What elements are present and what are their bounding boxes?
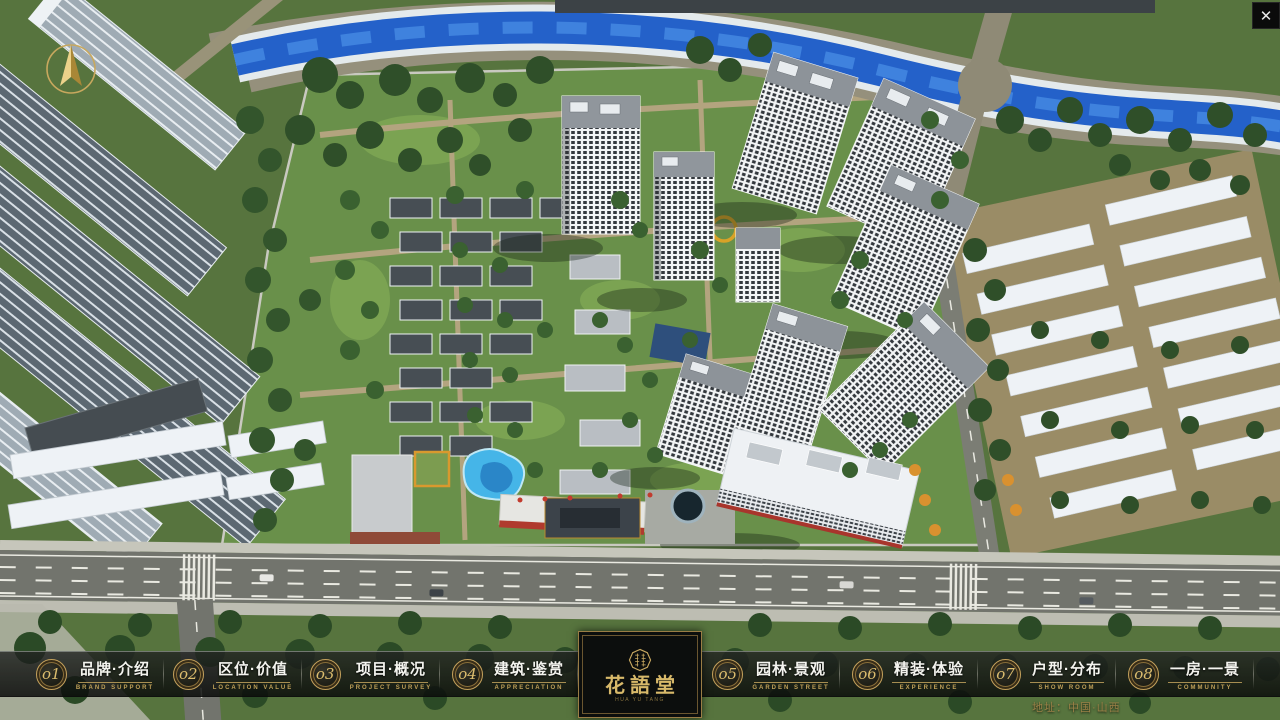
badge-o3: o3 (310, 659, 341, 690)
menu-subtitle: BRAND SUPPORT (76, 685, 154, 691)
masterplan-render (0, 0, 1280, 720)
menu-subtitle: APPRECIATION (495, 685, 564, 691)
menu-subtitle: COMMUNITY (1178, 685, 1233, 691)
brick-wall (350, 532, 440, 544)
menu-item-architecture[interactable]: o4 建筑·鉴赏 APPRECIATION (440, 652, 578, 696)
menu-title: 户型·分布 (1030, 658, 1104, 683)
project-name-caption: HUA YU TANG (615, 697, 665, 703)
community-building (352, 455, 412, 540)
menu-item-brand[interactable]: o1 品牌·介绍 BRAND SUPPORT (26, 652, 164, 696)
menu-title: 品牌·介绍 (78, 658, 152, 683)
seal-emblem-icon (627, 647, 653, 673)
menu-item-project[interactable]: o3 项目·概况 PROJECT SURVEY (302, 652, 440, 696)
menu-item-interior[interactable]: o6 精装·体验 EXPERIENCE (840, 652, 978, 696)
badge-o7: o7 (990, 659, 1021, 690)
menu-subtitle: SHOW ROOM (1039, 685, 1096, 691)
menu-item-floorplan[interactable]: o7 户型·分布 SHOW ROOM (978, 652, 1116, 696)
nav-zone-right: o5 园林·景观 GARDEN STREET o6 精装·体验 EXPERIEN… (702, 652, 1254, 696)
badge-o2: o2 (173, 659, 204, 690)
menu-title: 一房·一景 (1168, 658, 1242, 683)
scene-viewport[interactable] (0, 0, 1280, 720)
menu-title: 建筑·鉴赏 (492, 658, 566, 683)
badge-o6: o6 (852, 659, 883, 690)
badge-o5: o5 (712, 659, 743, 690)
menu-item-garden[interactable]: o5 园林·景观 GARDEN STREET (702, 652, 840, 696)
menu-title: 精装·体验 (892, 658, 966, 683)
badge-o4: o4 (452, 659, 483, 690)
nav-zone-left: o1 品牌·介绍 BRAND SUPPORT o2 区位·价值 LOCATION… (26, 652, 578, 696)
menu-item-views[interactable]: o8 一房·一景 COMMUNITY (1116, 652, 1254, 696)
presentation-window: ✕ o1 品牌·介绍 BRAND SUPPORT o2 区位·价值 LOCATI… (0, 0, 1280, 720)
badge-o1: o1 (36, 659, 67, 690)
close-button[interactable]: ✕ (1252, 2, 1280, 29)
menu-title: 区位·价值 (216, 658, 290, 683)
clubhouse-green-roof (415, 452, 449, 486)
close-icon: ✕ (1260, 7, 1273, 25)
far-buildings-band (555, 0, 1155, 13)
menu-subtitle: PROJECT SURVEY (350, 685, 433, 691)
project-name: 花語堂 (600, 675, 680, 695)
menu-title: 园林·景观 (754, 658, 828, 683)
menu-item-location[interactable]: o2 区位·价值 LOCATION VALUE (164, 652, 302, 696)
compass-icon (42, 40, 100, 98)
project-logo-plaque: 花語堂 HUA YU TANG (578, 631, 702, 718)
menu-subtitle: LOCATION VALUE (213, 685, 293, 691)
menu-subtitle: GARDEN STREET (752, 685, 829, 691)
badge-o8: o8 (1128, 659, 1159, 690)
menu-title: 项目·概况 (354, 658, 428, 683)
project-address: 地址：中国·山西 (1032, 699, 1121, 715)
menu-subtitle: EXPERIENCE (900, 685, 959, 691)
